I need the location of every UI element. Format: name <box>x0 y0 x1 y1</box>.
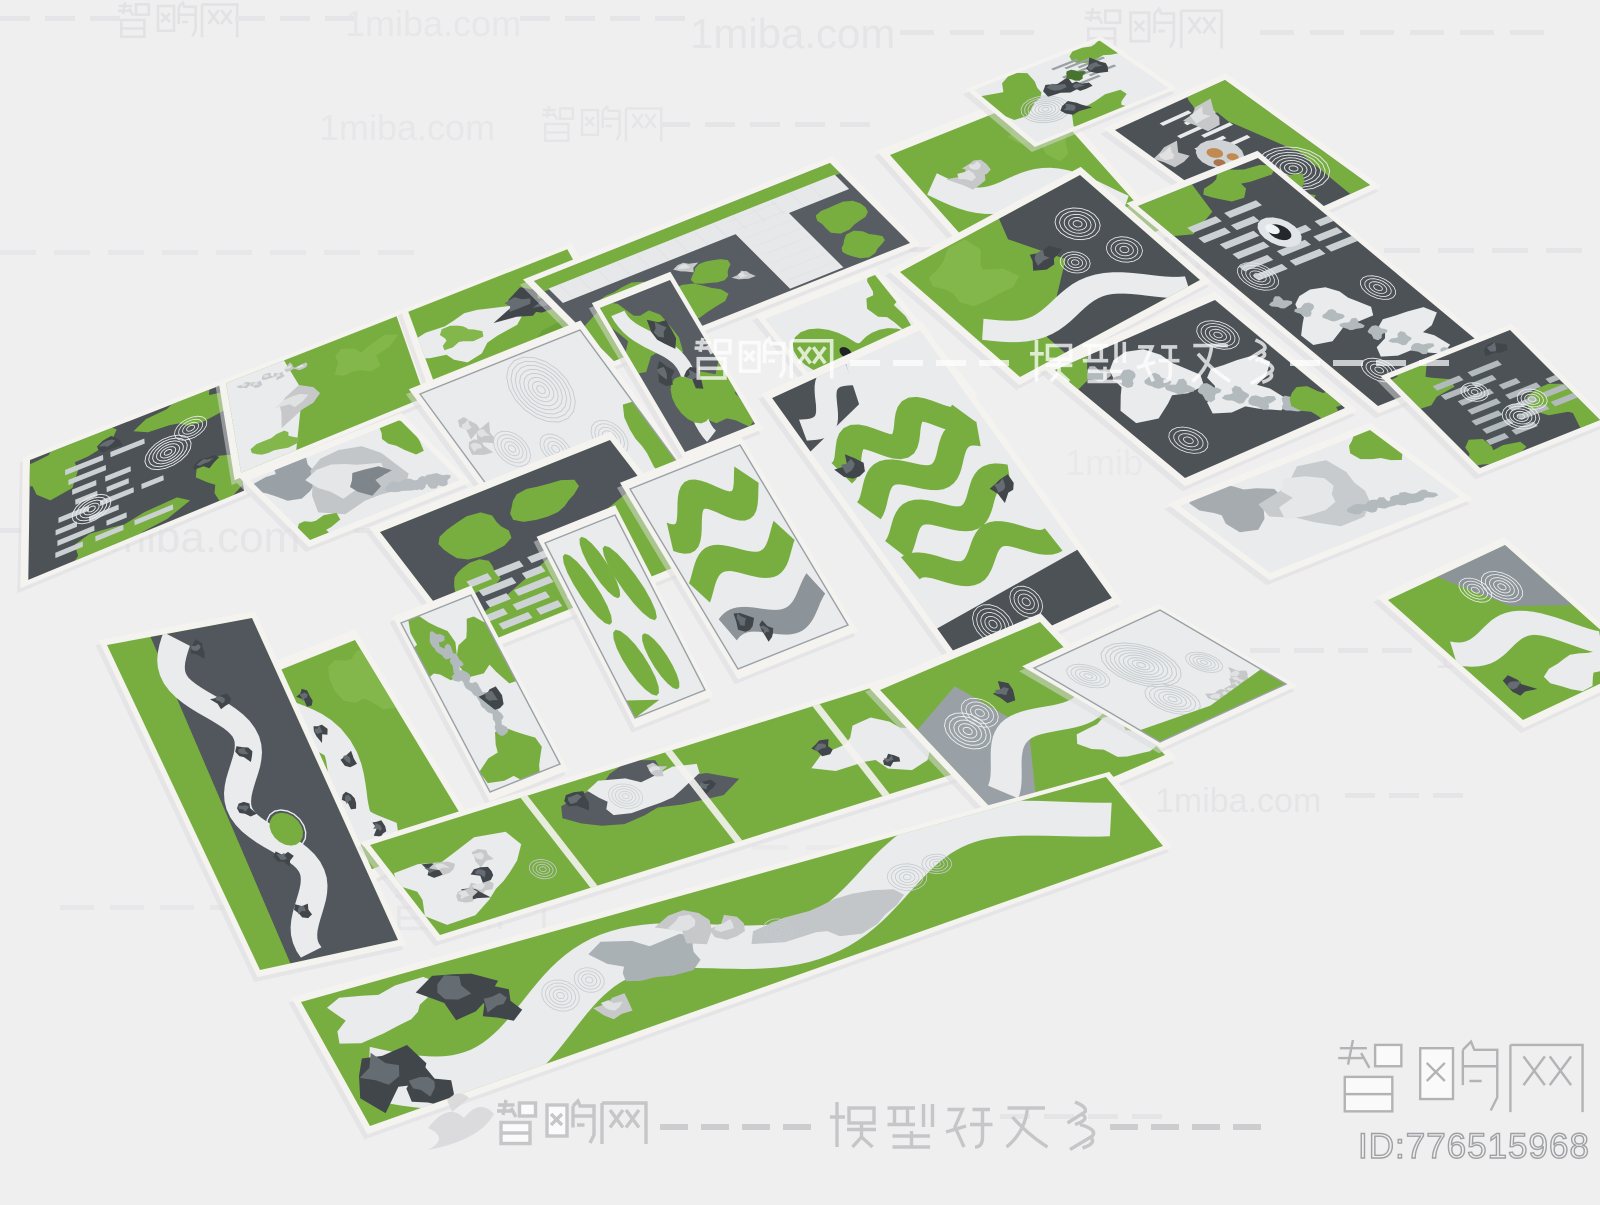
svg-text:ID:776515968: ID:776515968 <box>1358 1127 1590 1166</box>
svg-text:1miba.com: 1miba.com <box>690 10 895 57</box>
svg-text:1miba.com: 1miba.com <box>1155 782 1321 820</box>
svg-text:1miba.com: 1miba.com <box>319 107 495 148</box>
svg-text:1miba.com: 1miba.com <box>345 3 521 44</box>
